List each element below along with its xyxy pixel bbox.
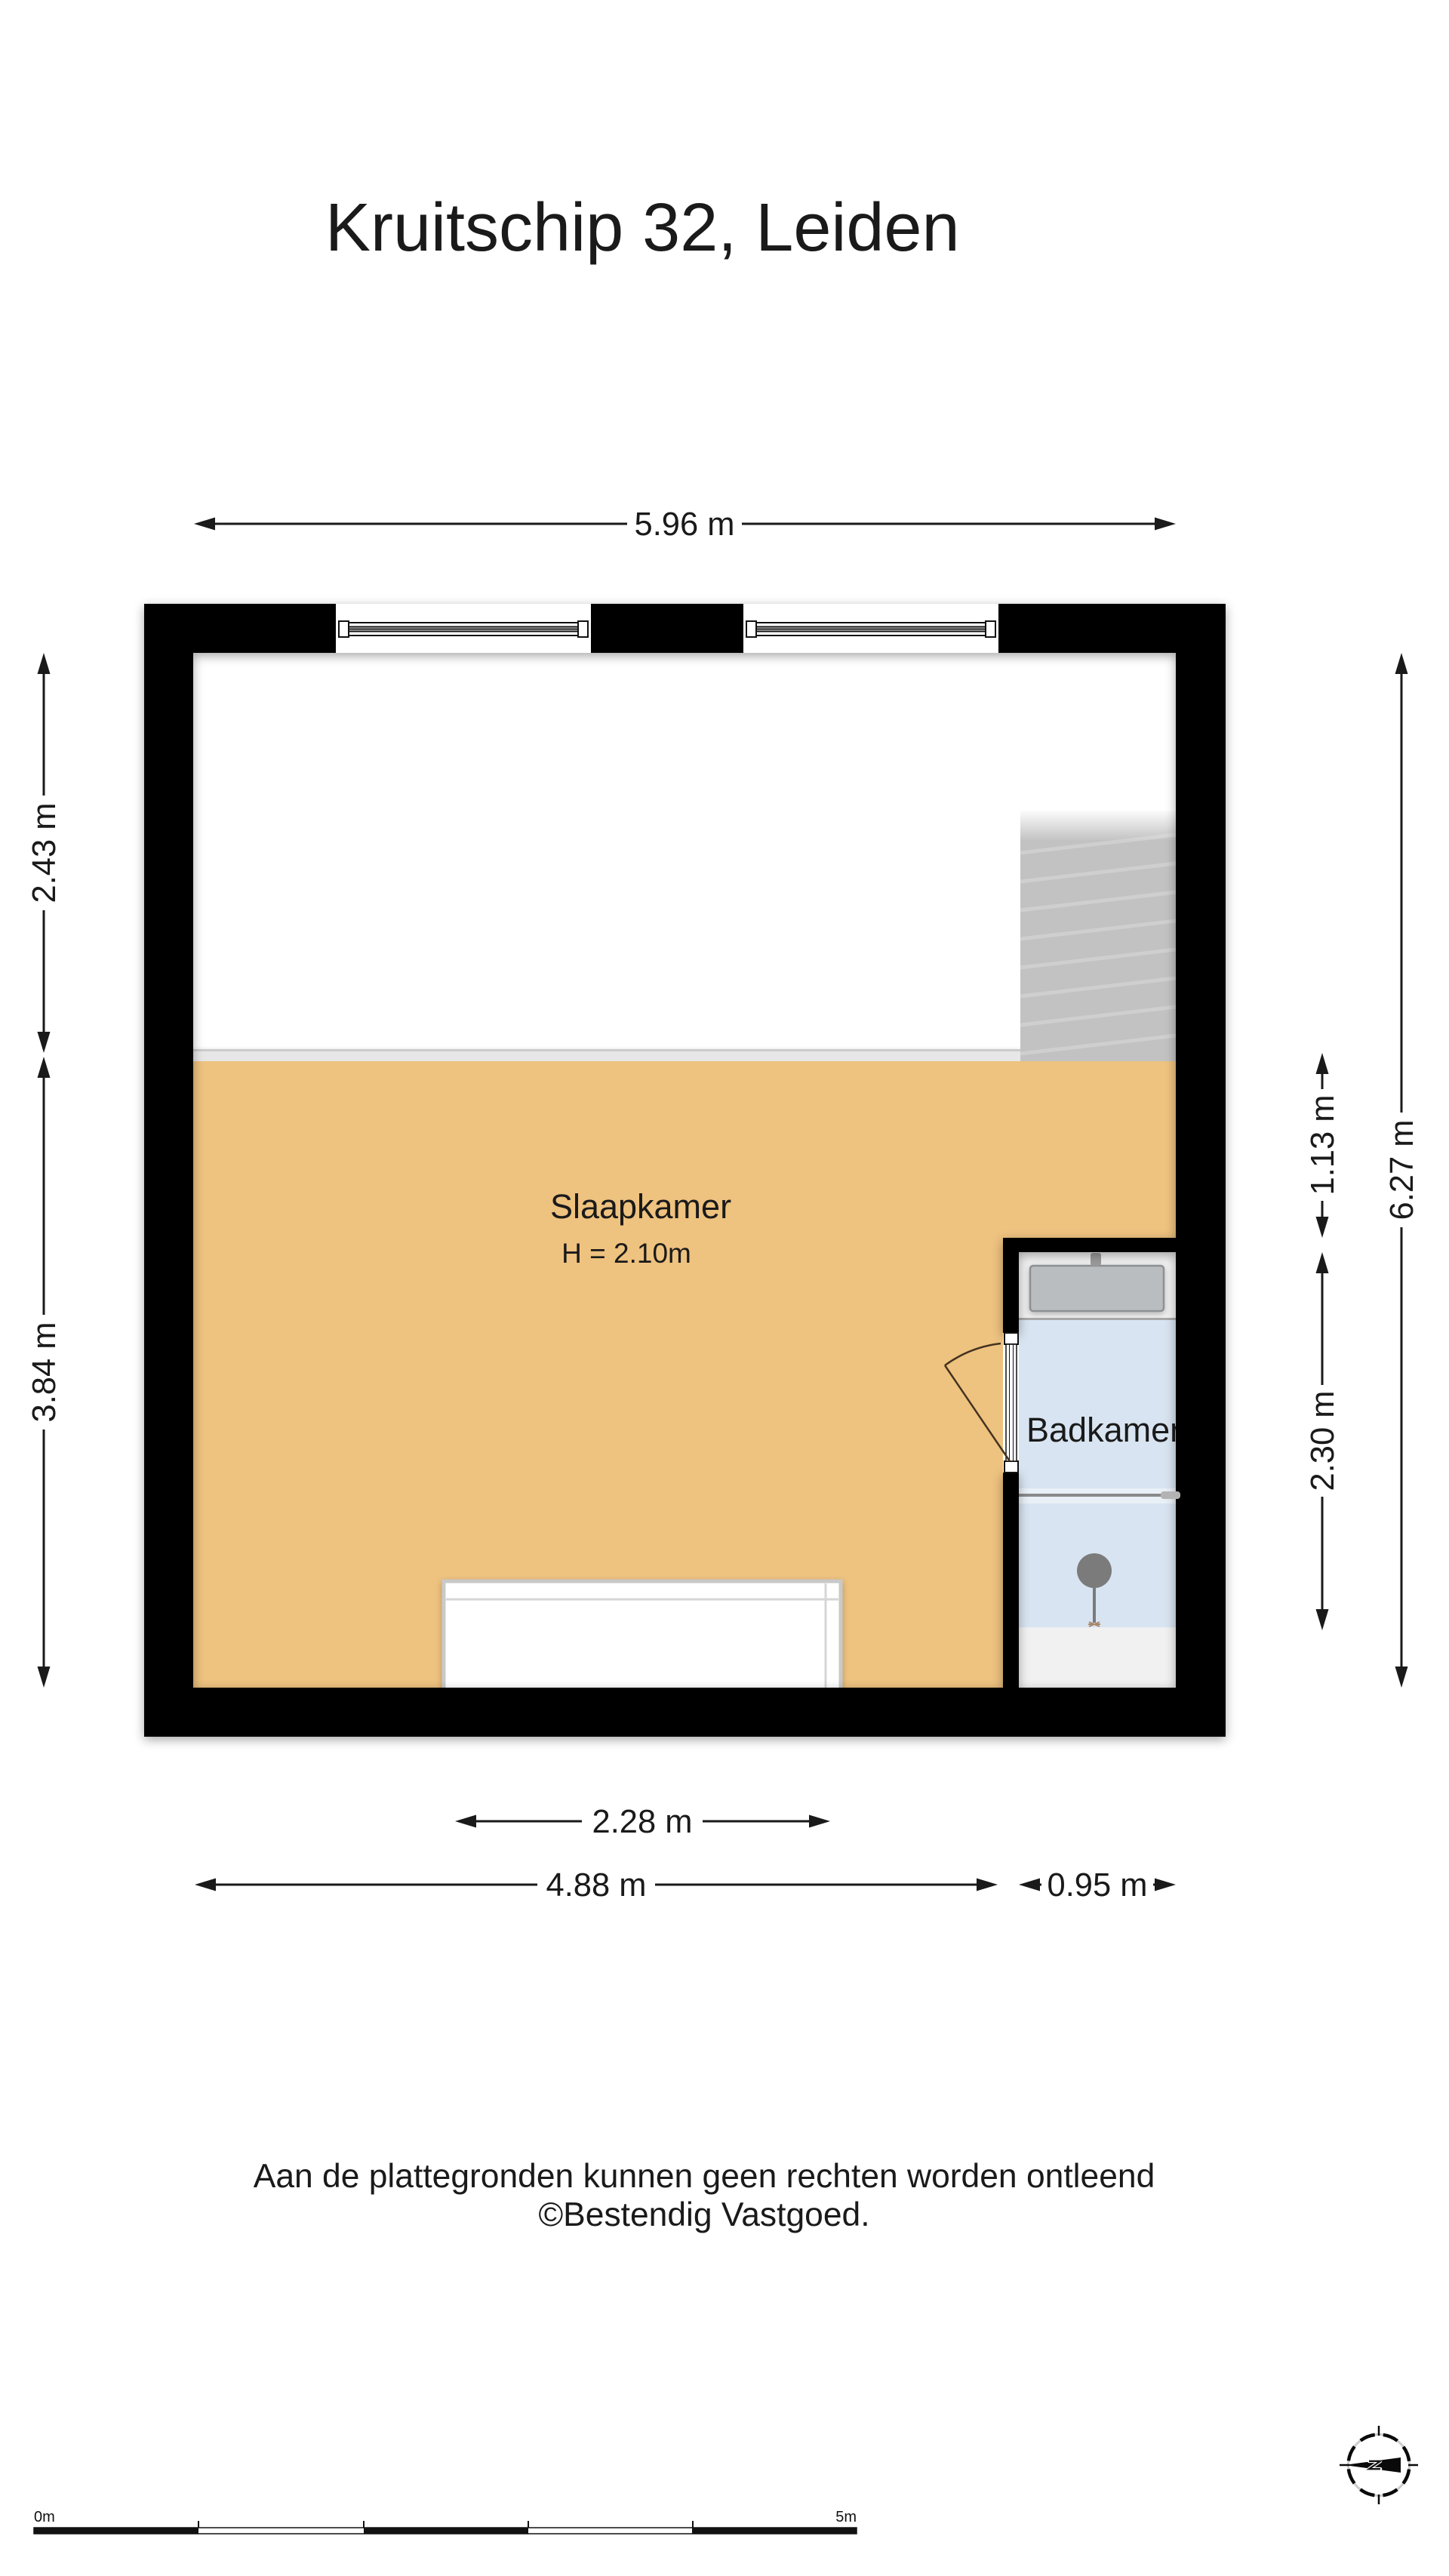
svg-text:Slaapkamer: Slaapkamer (550, 1187, 731, 1226)
svg-text:Aan de plattegronden kunnen ge: Aan de plattegronden kunnen geen rechten… (254, 2158, 1155, 2195)
svg-text:0.95 m: 0.95 m (1048, 1867, 1148, 1904)
svg-text:5.96 m: 5.96 m (635, 506, 735, 543)
svg-text:Badkamer: Badkamer (1026, 1411, 1181, 1449)
svg-text:6.27 m: 6.27 m (1384, 1120, 1420, 1220)
svg-text:5m: 5m (835, 2509, 857, 2525)
svg-text:©Bestendig Vastgoed.: ©Bestendig Vastgoed. (538, 2196, 869, 2233)
svg-text:2.28 m: 2.28 m (592, 1804, 693, 1840)
svg-text:H = 2.10m: H = 2.10m (561, 1238, 691, 1269)
svg-text:3.84 m: 3.84 m (26, 1322, 63, 1423)
svg-text:2.30 m: 2.30 m (1305, 1391, 1341, 1491)
svg-text:4.88 m: 4.88 m (546, 1867, 647, 1904)
svg-text:2.43 m: 2.43 m (26, 803, 63, 903)
svg-text:0m: 0m (34, 2509, 55, 2525)
svg-text:Kruitschip 32, Leiden: Kruitschip 32, Leiden (325, 190, 960, 266)
svg-text:1.13 m: 1.13 m (1305, 1095, 1341, 1196)
